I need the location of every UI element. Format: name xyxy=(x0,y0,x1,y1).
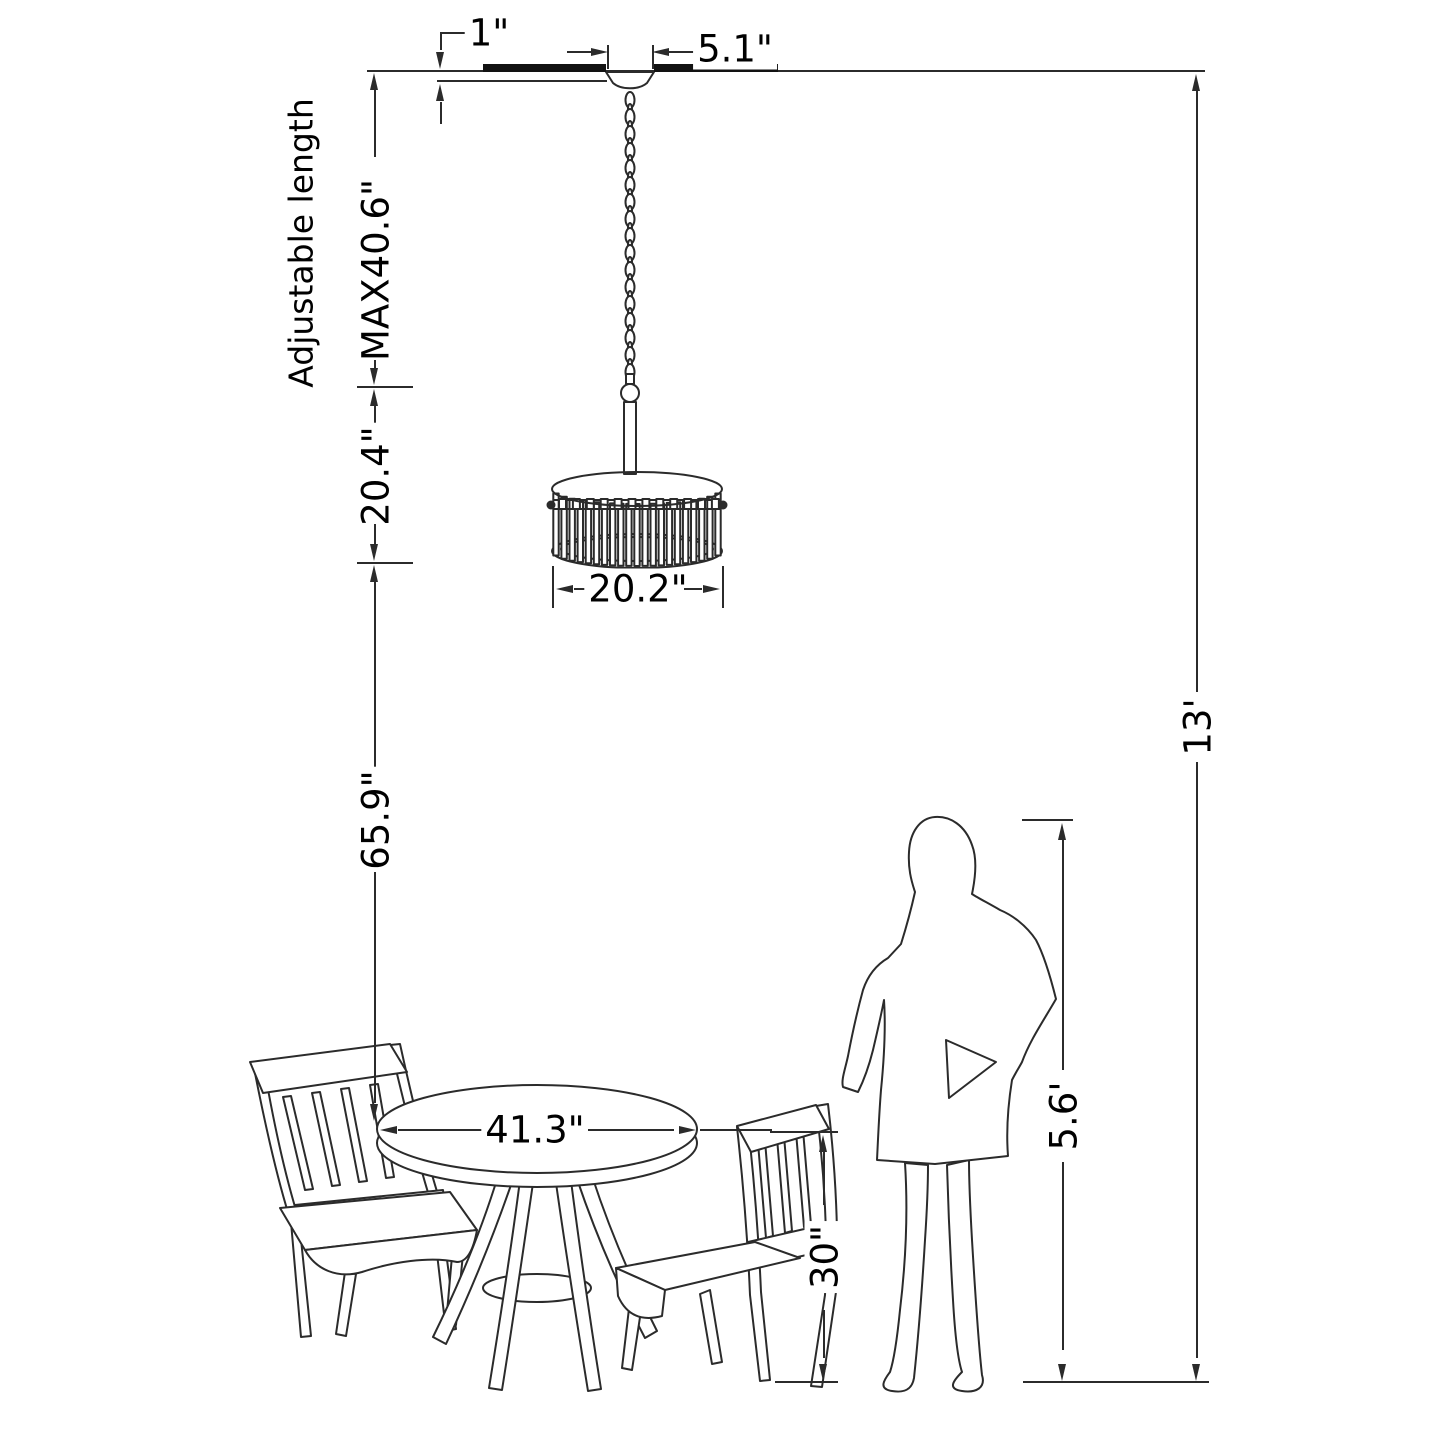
canopy xyxy=(606,72,654,88)
dim-person-height-line2 xyxy=(1062,1162,1064,1350)
dim-canopy-height-arrow-down xyxy=(436,52,444,69)
dim-tick-lower xyxy=(357,562,413,564)
dim-fixture-height-arrow-up xyxy=(370,389,378,406)
finial-ball xyxy=(621,384,639,402)
dim-chair-height-arrow-down xyxy=(819,1364,827,1381)
dim-room-height-arrow-down xyxy=(1192,1364,1200,1381)
dim-person-height-arrow-down xyxy=(1058,1364,1066,1381)
drum-shade xyxy=(548,472,727,568)
dim-shade-width-arrow-right xyxy=(703,585,720,593)
dim-clearance-label: 65.9" xyxy=(356,766,397,873)
dim-table-width-label: 41.3" xyxy=(481,1110,588,1151)
dim-chair-height-line2 xyxy=(823,1310,825,1358)
adjustable-length-label: Adjustable length xyxy=(283,94,320,391)
dim-room-height-label: 13' xyxy=(1178,694,1219,759)
floor-line-right xyxy=(1023,1381,1209,1383)
dim-canopy-width-arrow-right xyxy=(591,48,608,56)
dim-table-width-arrow-left xyxy=(380,1126,397,1134)
dim-chair-height-line xyxy=(823,1152,825,1205)
dim-table-width-line-left xyxy=(398,1129,482,1131)
pendant-chandelier xyxy=(548,72,727,568)
dim-canopy-height-line2 xyxy=(440,102,442,124)
dim-table-width-line-right xyxy=(588,1129,674,1131)
dim-chair-height-label: 30" xyxy=(805,1221,846,1293)
dim-tick-upper xyxy=(357,386,413,388)
dim-clearance-line xyxy=(374,582,376,768)
dim-fixture-height-label: 20.4" xyxy=(356,422,397,529)
dim-fixture-height-arrow-down xyxy=(370,544,378,561)
dim-shade-width-line-right xyxy=(684,588,702,590)
left-leg xyxy=(883,1163,928,1392)
mount-bar-left xyxy=(483,64,606,72)
dim-person-height-arrow-up xyxy=(1058,823,1066,840)
stem xyxy=(624,402,636,474)
dim-shade-width-arrow-left xyxy=(556,585,573,593)
dim-room-height-line2 xyxy=(1196,762,1198,1358)
dim-max-length-line xyxy=(374,90,376,157)
dim-max-length-label: MAX40.6" xyxy=(356,175,397,365)
dim-table-width-ext-line xyxy=(700,1129,772,1131)
dim-canopy-height-line xyxy=(440,32,442,50)
dim-table-width-arrow-right xyxy=(679,1126,696,1134)
dim-room-height-arrow-up xyxy=(1192,74,1200,91)
woman-silhouette xyxy=(842,817,1056,1392)
dim-canopy-height-bracket xyxy=(441,32,467,34)
dim-shade-width-ext-left xyxy=(552,566,554,608)
dim-canopy-width-label: 5.1" xyxy=(693,29,777,70)
dim-canopy-width-line-left xyxy=(567,51,593,53)
body-outline xyxy=(842,817,1056,1164)
scene-artwork xyxy=(0,0,1445,1445)
dim-max-length-arrow-down xyxy=(370,368,378,385)
dim-room-height-line xyxy=(1196,91,1198,692)
dim-person-height-tick-top xyxy=(1022,819,1073,821)
chain xyxy=(626,92,635,385)
dim-canopy-width-arrow-left xyxy=(652,48,669,56)
dim-fixture-height-line2 xyxy=(374,524,376,544)
dim-shade-width-ext-right xyxy=(722,566,724,608)
dim-clearance-arrow-up xyxy=(370,565,378,582)
dim-person-height-line xyxy=(1062,840,1064,1070)
dim-shade-width-label: 20.2" xyxy=(584,569,691,610)
dim-max-length-arrow-up xyxy=(370,73,378,90)
canopy-extension-line xyxy=(437,80,607,82)
right-leg xyxy=(947,1160,983,1391)
dim-canopy-height-arrow-up xyxy=(436,84,444,101)
dim-clearance-line2 xyxy=(374,872,376,1103)
dim-chair-height-arrow-up xyxy=(819,1135,827,1152)
finial-neck xyxy=(626,374,634,384)
side-chair-left xyxy=(250,1044,477,1337)
dim-clearance-arrow-down xyxy=(370,1104,378,1121)
dimension-diagram: 1" 5.1" Adjustable length MAX40.6" 20.4"… xyxy=(0,0,1445,1445)
dim-canopy-height-label: 1" xyxy=(465,13,514,54)
dim-person-height-label: 5.6' xyxy=(1044,1077,1085,1154)
floor-line-left xyxy=(775,1381,838,1383)
dim-chair-height-tick-top xyxy=(770,1131,838,1133)
